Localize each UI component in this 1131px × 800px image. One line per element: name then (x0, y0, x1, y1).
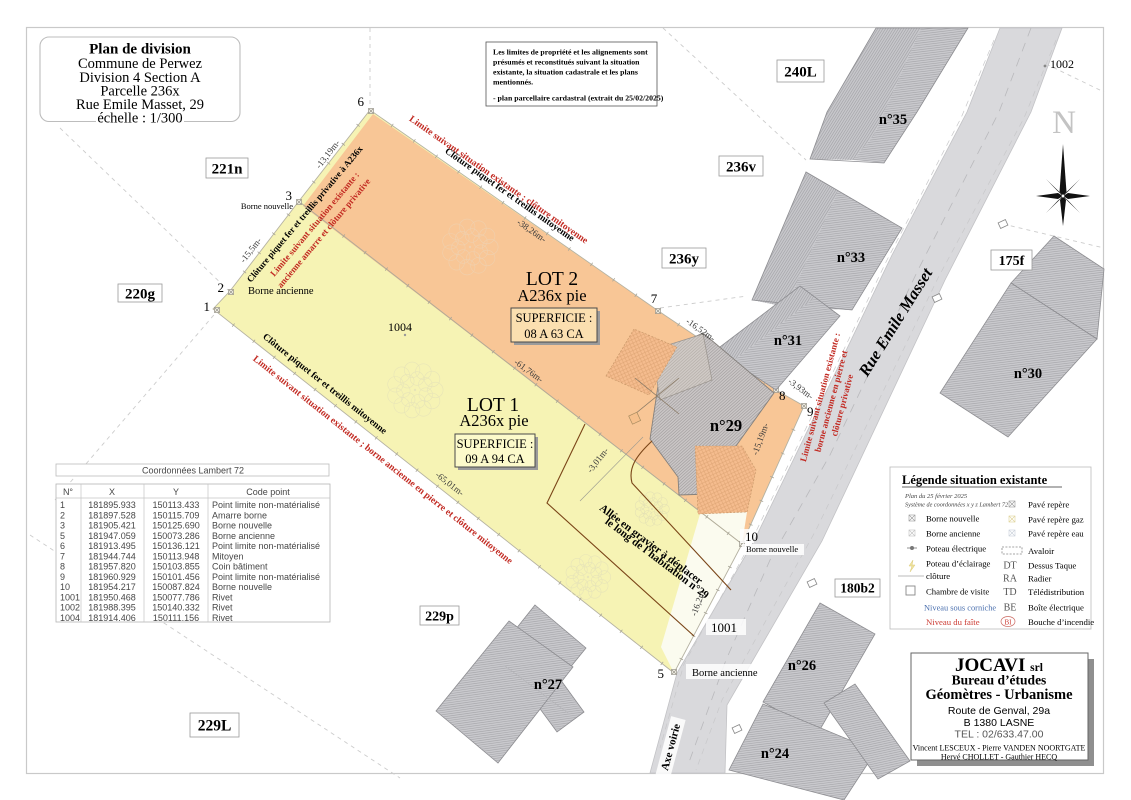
svg-text:6: 6 (60, 541, 65, 551)
svg-text:Boîte électrique: Boîte électrique (1028, 603, 1084, 613)
svg-text:181988.395: 181988.395 (88, 603, 136, 613)
svg-text:Mitoyen: Mitoyen (212, 551, 244, 561)
svg-text:1002: 1002 (60, 603, 80, 613)
svg-text:Borne ancienne: Borne ancienne (926, 529, 980, 539)
svg-text:150111.156: 150111.156 (153, 613, 199, 623)
svg-text:Borne nouvelle: Borne nouvelle (746, 544, 798, 554)
svg-text:150073.286: 150073.286 (152, 531, 200, 541)
svg-text:existante, la situation cadast: existante, la situation cadastrale et le… (493, 68, 638, 77)
svg-text:B 1380 LASNE: B 1380 LASNE (964, 717, 1035, 729)
svg-text:- plan parcellaire cardastral: - plan parcellaire cardastral (extrait d… (493, 94, 664, 103)
svg-text:1002: 1002 (1050, 57, 1074, 71)
svg-text:150125.690: 150125.690 (152, 521, 200, 531)
svg-text:150103.855: 150103.855 (152, 562, 200, 572)
svg-text:Poteau électrique: Poteau électrique (926, 544, 986, 554)
svg-text:1004: 1004 (60, 613, 80, 623)
svg-text:1001: 1001 (711, 620, 737, 635)
svg-text:Géomètres - Urbanisme: Géomètres - Urbanisme (925, 687, 1073, 703)
svg-text:Avaloir: Avaloir (1028, 546, 1054, 556)
svg-text:A236x pie: A236x pie (459, 411, 528, 430)
svg-text:TD: TD (1003, 587, 1016, 598)
svg-text:150136.121: 150136.121 (152, 541, 200, 551)
svg-text:1004: 1004 (388, 320, 412, 334)
svg-text:175f: 175f (999, 254, 1025, 269)
svg-text:Rivet: Rivet (212, 613, 233, 623)
svg-text:Coin bâtiment: Coin bâtiment (212, 562, 268, 572)
svg-text:Borne ancienne: Borne ancienne (212, 531, 275, 541)
svg-text:Code point: Code point (246, 487, 290, 497)
svg-text:Plan du 25 février 2025: Plan du 25 février 2025 (904, 493, 968, 500)
svg-text:BI: BI (1005, 619, 1013, 627)
svg-text:181914.406: 181914.406 (88, 613, 136, 623)
svg-text:Bouche d’incendie: Bouche d’incendie (1028, 617, 1094, 627)
svg-text:181905.421: 181905.421 (88, 521, 136, 531)
svg-text:Bureau d’études: Bureau d’études (952, 673, 1047, 688)
svg-text:7: 7 (60, 551, 65, 561)
svg-text:08 A 63 CA: 08 A 63 CA (524, 327, 583, 341)
svg-text:Radier: Radier (1028, 574, 1052, 584)
svg-text:n°24: n°24 (761, 746, 789, 762)
svg-text:9: 9 (60, 572, 65, 582)
svg-text:10: 10 (60, 582, 70, 592)
svg-text:181957.820: 181957.820 (88, 562, 136, 572)
svg-text:Borne ancienne: Borne ancienne (692, 668, 758, 679)
svg-text:Coordonnées Lambert 72: Coordonnées Lambert 72 (142, 466, 244, 476)
svg-text:n°26: n°26 (788, 658, 816, 674)
svg-text:236y: 236y (669, 251, 700, 267)
svg-text:Pavé repère gaz: Pavé repère gaz (1028, 515, 1084, 525)
svg-text:181913.495: 181913.495 (88, 541, 136, 551)
svg-text:n°33: n°33 (837, 250, 865, 266)
svg-text:échelle : 1/300: échelle : 1/300 (97, 111, 182, 127)
svg-text:n°35: n°35 (879, 112, 907, 128)
svg-text:150077.786: 150077.786 (152, 592, 200, 602)
svg-text:150140.332: 150140.332 (152, 603, 200, 613)
svg-text:X: X (109, 487, 115, 497)
svg-text:Route de Genval, 29a: Route de Genval, 29a (948, 705, 1050, 717)
svg-text:8: 8 (779, 388, 786, 403)
svg-text:Borne nouvelle: Borne nouvelle (212, 521, 272, 531)
svg-text:181950.468: 181950.468 (88, 592, 136, 602)
svg-text:8: 8 (60, 562, 65, 572)
svg-text:2: 2 (218, 280, 225, 295)
svg-text:1001: 1001 (60, 592, 80, 602)
svg-text:150113.948: 150113.948 (153, 551, 200, 561)
svg-text:A236x pie: A236x pie (517, 286, 586, 305)
svg-text:150087.824: 150087.824 (152, 582, 200, 592)
svg-text:Point limite non-matérialisé: Point limite non-matérialisé (212, 572, 320, 582)
svg-text:Pavé repère eau: Pavé repère eau (1028, 529, 1084, 539)
svg-text:09 A 94 CA: 09 A 94 CA (465, 452, 524, 466)
svg-text:TEL : 02/633.47.00: TEL : 02/633.47.00 (955, 729, 1044, 741)
svg-text:Borne nouvelle: Borne nouvelle (212, 582, 272, 592)
svg-text:Vincent LESCEUX - Pierre VANDE: Vincent LESCEUX - Pierre VANDEN NOORTGAT… (913, 744, 1086, 753)
svg-text:Système de coordonnées x y z L: Système de coordonnées x y z Lambert 72 (905, 502, 1008, 509)
svg-text:181960.929: 181960.929 (88, 572, 136, 582)
svg-text:1: 1 (60, 500, 65, 510)
svg-text:229L: 229L (198, 717, 232, 734)
svg-text:présumés et reconstitués suiva: présumés et reconstitués suivant la situ… (493, 58, 640, 67)
svg-text:229p: 229p (425, 609, 454, 624)
svg-text:mentionnés.: mentionnés. (493, 78, 533, 87)
svg-text:N°: N° (63, 487, 73, 497)
svg-text:9: 9 (807, 404, 814, 419)
svg-text:181895.933: 181895.933 (88, 500, 136, 510)
svg-text:220g: 220g (125, 286, 156, 302)
svg-text:Hervé CHOLLET - Gauthier HECQ: Hervé CHOLLET - Gauthier HECQ (941, 753, 1057, 762)
svg-text:181944.744: 181944.744 (88, 551, 136, 561)
svg-text:Point limite non-matérialisé: Point limite non-matérialisé (212, 541, 320, 551)
svg-text:5: 5 (658, 666, 665, 681)
svg-text:BE: BE (1004, 603, 1017, 614)
svg-text:5: 5 (60, 531, 65, 541)
svg-text:Point limite non-matérialisé: Point limite non-matérialisé (212, 500, 320, 510)
svg-text:150115.709: 150115.709 (153, 510, 200, 520)
svg-text:3: 3 (60, 521, 65, 531)
svg-text:Rivet: Rivet (212, 603, 233, 613)
svg-text:DT: DT (1003, 561, 1016, 572)
svg-text:n°31: n°31 (774, 333, 802, 349)
svg-text:150101.456: 150101.456 (152, 572, 200, 582)
svg-text:Niveau sous corniche: Niveau sous corniche (924, 604, 996, 613)
svg-text:N: N (1052, 105, 1076, 141)
svg-text:Poteau d’éclairage: Poteau d’éclairage (926, 559, 991, 569)
svg-text:1: 1 (204, 299, 211, 314)
svg-text:Légende situation existante: Légende situation existante (902, 473, 1048, 487)
svg-text:221n: 221n (212, 161, 244, 177)
svg-text:Borne ancienne: Borne ancienne (248, 286, 314, 297)
svg-text:SUPERFICIE :: SUPERFICIE : (516, 311, 593, 325)
svg-text:Y: Y (173, 487, 179, 497)
svg-text:Télédistribution: Télédistribution (1028, 587, 1085, 597)
svg-text:10: 10 (745, 529, 758, 544)
svg-text:Amarre borne: Amarre borne (212, 510, 267, 520)
svg-text:181954.217: 181954.217 (88, 582, 136, 592)
svg-text:Pavé repère: Pavé repère (1028, 500, 1069, 510)
svg-text:180b2: 180b2 (840, 581, 875, 596)
svg-text:2: 2 (60, 510, 65, 520)
svg-text:240L: 240L (784, 64, 817, 80)
svg-text:Borne nouvelle: Borne nouvelle (241, 201, 293, 211)
svg-text:181947.059: 181947.059 (88, 531, 136, 541)
svg-text:Niveau du faîte: Niveau du faîte (926, 617, 980, 627)
svg-text:181897.528: 181897.528 (88, 510, 136, 520)
svg-text:clôture: clôture (926, 571, 950, 581)
svg-text:Les limites de propriété et le: Les limites de propriété et les aligneme… (493, 48, 648, 57)
svg-text:7: 7 (651, 291, 658, 306)
svg-text:n°29: n°29 (710, 416, 742, 435)
svg-text:150113.433: 150113.433 (153, 500, 200, 510)
svg-text:Dessus Taque: Dessus Taque (1028, 561, 1076, 571)
svg-text:236v: 236v (726, 159, 757, 175)
svg-text:Rivet: Rivet (212, 592, 233, 602)
svg-text:SUPERFICIE :: SUPERFICIE : (457, 437, 534, 451)
svg-text:Chambre de visite: Chambre de visite (926, 587, 989, 597)
svg-text:n°30: n°30 (1014, 366, 1042, 382)
svg-text:6: 6 (358, 94, 365, 109)
svg-text:Borne nouvelle: Borne nouvelle (926, 514, 979, 524)
svg-text:RA: RA (1003, 574, 1018, 585)
svg-text:n°27: n°27 (534, 677, 562, 693)
